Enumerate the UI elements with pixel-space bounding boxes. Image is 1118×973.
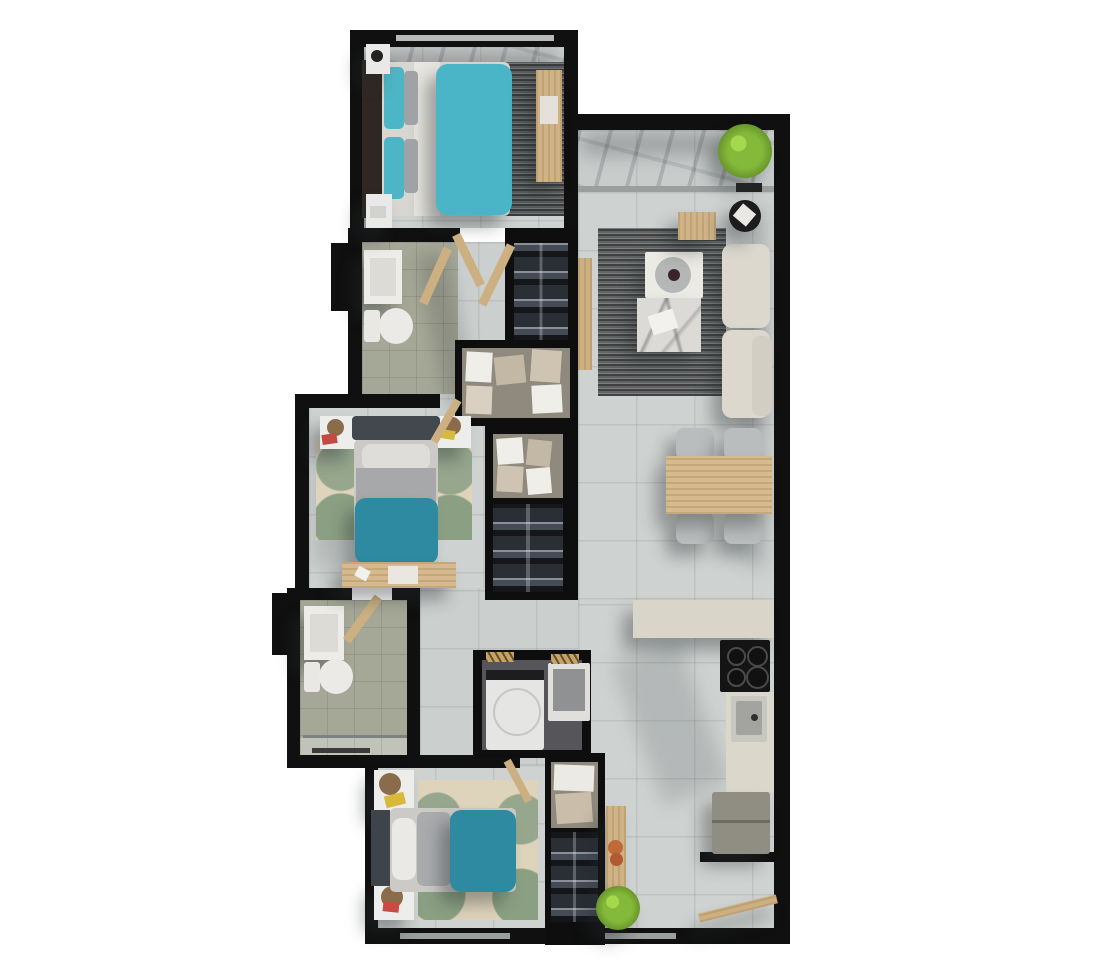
sofa-armrest bbox=[752, 336, 772, 416]
bedroom3-book-bottom bbox=[383, 901, 400, 913]
master-lamp-top bbox=[371, 50, 383, 62]
floor-plan-canvas bbox=[0, 0, 1118, 973]
dining-chair-4 bbox=[724, 512, 762, 544]
bedroom2-books-left bbox=[321, 433, 337, 445]
shower-glass bbox=[303, 735, 407, 738]
wall-right bbox=[774, 114, 790, 944]
window-bottom-a bbox=[400, 933, 510, 939]
bedroom2-desk-decor bbox=[388, 566, 418, 584]
kitchen-faucet bbox=[751, 714, 758, 721]
closet1-folded-4 bbox=[531, 384, 562, 414]
closet2-folded-4 bbox=[526, 467, 552, 495]
bedroom3-pillow-gray bbox=[417, 812, 451, 886]
bedroom3-duvet bbox=[450, 810, 516, 892]
wall-master-bottom bbox=[350, 228, 460, 242]
window-master-top bbox=[396, 35, 554, 41]
fridge-door-line bbox=[712, 820, 770, 823]
wall-bathroom2-left bbox=[287, 588, 300, 768]
balcony-plant bbox=[718, 124, 772, 178]
dining-table bbox=[666, 456, 772, 514]
master-duvet bbox=[436, 64, 512, 215]
master-dresser-decor bbox=[540, 96, 558, 124]
floor-plant bbox=[596, 886, 640, 930]
cooktop-burner-4 bbox=[746, 666, 769, 689]
bedroom2-pillow bbox=[362, 444, 430, 470]
cooktop-burner-1 bbox=[727, 647, 746, 666]
sofa-seat-1 bbox=[722, 244, 770, 328]
wall-shaft-2 bbox=[272, 593, 287, 655]
closet2-folded-1 bbox=[496, 437, 524, 465]
laundry-hooks-1 bbox=[486, 652, 514, 662]
balcony-door-handle bbox=[736, 183, 762, 192]
kitchen-sink-basin bbox=[736, 701, 762, 735]
wall-bathroom2-right bbox=[407, 588, 420, 768]
bathroom2-toilet-tank bbox=[304, 662, 320, 692]
closet1-folded-3 bbox=[530, 349, 562, 383]
coffee-table-fruit bbox=[668, 269, 680, 281]
bathroom2-toilet-bowl bbox=[319, 659, 353, 694]
bedroom3-pillow-white bbox=[392, 818, 416, 880]
washing-machine-drum bbox=[493, 688, 541, 736]
closet1-folded-2 bbox=[494, 355, 527, 386]
wall-shaft-1 bbox=[331, 243, 348, 311]
washing-machine-panel bbox=[486, 670, 544, 680]
bathroom1-toilet-bowl bbox=[379, 308, 413, 344]
closet1-folded-1 bbox=[465, 351, 493, 382]
closet3-hanging-clothes bbox=[551, 832, 598, 922]
bedroom2-headboard bbox=[352, 416, 440, 440]
wall-bedroom2-top bbox=[295, 394, 440, 408]
kitchen-peninsula bbox=[633, 600, 774, 638]
bedroom2-duvet bbox=[355, 498, 438, 564]
tv-panel bbox=[578, 258, 592, 370]
closet3-folded-2 bbox=[555, 792, 593, 824]
bathroom1-sink-basin bbox=[370, 258, 396, 296]
bedroom3-headboard bbox=[371, 810, 390, 886]
closet1-folded-5 bbox=[466, 386, 493, 415]
laundry-hooks-2 bbox=[551, 654, 579, 664]
cooktop-burner-3 bbox=[727, 668, 746, 687]
master-pillow-gray-2 bbox=[404, 139, 418, 193]
laundry-sink-basin bbox=[553, 669, 585, 711]
closet3-folded-1 bbox=[554, 764, 595, 791]
shower-drain-bar bbox=[312, 748, 370, 753]
closet2-hanging-clothes bbox=[493, 504, 563, 592]
wall-bedroom2-left bbox=[295, 394, 309, 597]
master-pillow-gray-1 bbox=[404, 71, 418, 125]
cooktop-burner-2 bbox=[747, 646, 768, 667]
closet2-folded-2 bbox=[526, 439, 553, 467]
side-table-wood bbox=[678, 212, 716, 240]
master-pillow-teal-1 bbox=[384, 67, 404, 129]
master-pillow-teal-2 bbox=[384, 137, 404, 199]
fridge bbox=[712, 792, 770, 854]
wall-bathroom1-left bbox=[348, 228, 362, 394]
closet2-folded-3 bbox=[496, 465, 523, 492]
closet1-hanging-clothes bbox=[514, 243, 568, 341]
console-decor-ring-2 bbox=[610, 853, 623, 866]
bathroom2-sink-basin bbox=[310, 614, 338, 652]
bedroom3-hat-top bbox=[379, 773, 401, 795]
master-tray-bottom bbox=[370, 206, 386, 218]
master-dresser bbox=[536, 70, 562, 182]
bathroom1-toilet-tank bbox=[364, 310, 380, 342]
dining-chair-3 bbox=[676, 512, 714, 544]
